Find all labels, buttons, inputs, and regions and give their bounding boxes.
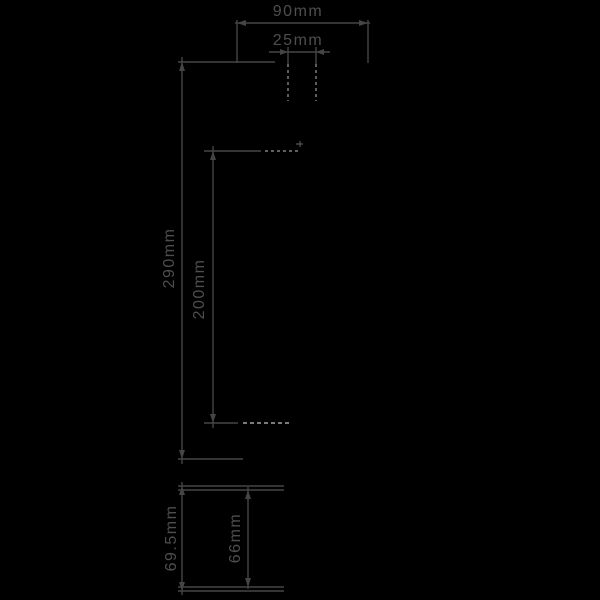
dim-66mm-arrow-bottom (245, 578, 251, 587)
dim-66mm-label: 66mm (227, 513, 245, 563)
dimension-drawing-canvas: 90mm 25mm 290mm 200mm 69.5mm 66mm (0, 0, 600, 600)
dim-200mm-arrow-top (210, 151, 216, 160)
dim-290mm-arrow-bottom (179, 450, 185, 459)
dim-90mm-arrow-right (359, 20, 368, 26)
dim-200mm-label: 200mm (191, 259, 209, 320)
dim-66mm (245, 487, 251, 589)
dim-290mm-arrow-top (179, 62, 185, 71)
dim-25mm (269, 47, 330, 101)
dim-66mm-arrow-top (245, 490, 251, 499)
dim-90mm-arrow-left (237, 20, 246, 26)
dim-290mm-label: 290mm (161, 228, 179, 289)
dim-90mm-label: 90mm (273, 3, 323, 21)
dim-200mm (204, 141, 303, 428)
dim-69-5mm-label: 69.5mm (163, 505, 181, 572)
front-view-drawing (178, 20, 370, 464)
dim-25mm-label: 25mm (273, 32, 323, 50)
drawing-linework (0, 0, 600, 600)
dim-200mm-arrow-bottom (210, 414, 216, 423)
